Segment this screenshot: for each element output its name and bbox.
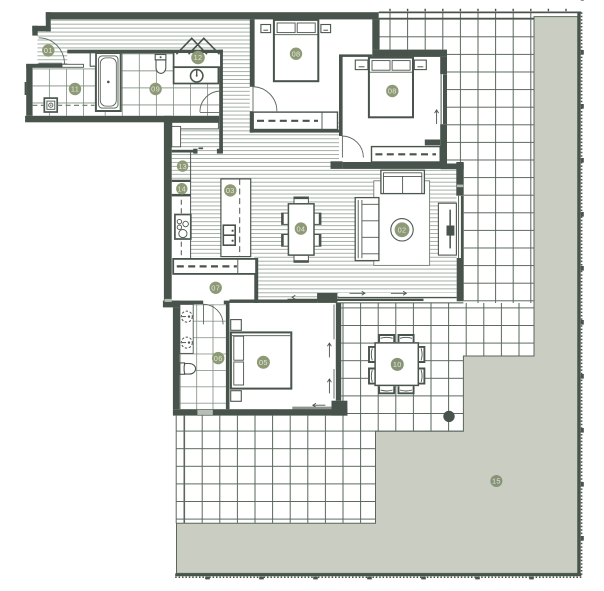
svg-text:10: 10 xyxy=(393,360,402,369)
svg-text:08: 08 xyxy=(292,49,301,58)
svg-text:03: 03 xyxy=(226,186,235,195)
svg-text:04: 04 xyxy=(296,224,305,233)
svg-text:14: 14 xyxy=(178,186,186,193)
svg-text:02: 02 xyxy=(398,226,407,235)
svg-text:01: 01 xyxy=(44,46,53,55)
svg-text:06: 06 xyxy=(214,354,223,363)
svg-text:11: 11 xyxy=(71,85,79,94)
svg-text:08: 08 xyxy=(388,87,397,96)
svg-text:05: 05 xyxy=(259,358,268,367)
svg-text:15: 15 xyxy=(492,477,501,486)
svg-text:09: 09 xyxy=(151,85,160,94)
svg-text:12: 12 xyxy=(194,53,203,62)
svg-text:07: 07 xyxy=(211,284,220,293)
svg-text:13: 13 xyxy=(178,164,186,171)
